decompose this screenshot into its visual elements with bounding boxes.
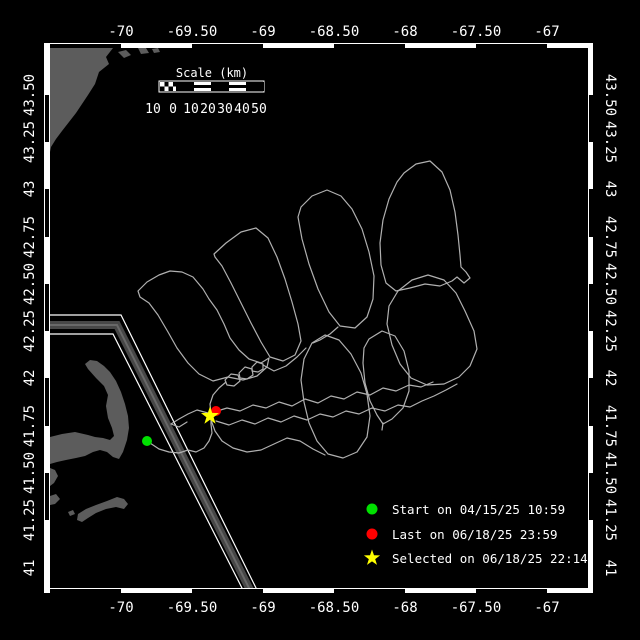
start-position-marker[interactable] [142,436,152,446]
border-dash [334,589,405,593]
scale-number: 40 [234,102,250,117]
scale-number: 10 [183,102,199,117]
axis-tick-label-right: 41.50 [602,452,618,494]
axis-tick-label-top: -69 [250,24,275,40]
scale-checker-cell [164,82,168,87]
border-dash [334,44,405,48]
scale-checker-cell [164,87,168,92]
axis-tick-label-bottom: -69 [250,600,275,616]
axis-tick-label-left: 41.25 [22,499,38,541]
axis-tick-label-right: 43.25 [602,121,618,163]
scale-checker-cell [169,87,173,92]
border-dash [192,589,263,593]
axis-tick-label-right: 41 [602,560,618,577]
axis-tick-label-left: 42.75 [22,216,38,258]
scale-number: 50 [251,102,267,117]
scale-number: 10 [145,102,161,117]
axis-tick-label-left: 41 [22,560,38,577]
border-dash [45,473,49,520]
border-dash [476,44,547,48]
axis-tick-label-right: 41.25 [602,499,618,541]
axis-tick-label-right: 42.75 [602,216,618,258]
legend-last-label: Last on 06/18/25 23:59 [392,527,558,542]
border-dash [45,189,49,237]
axis-tick-label-left: 43.50 [22,74,38,116]
axis-tick-label-right: 43 [602,181,618,198]
scale-segment-stripe [194,85,211,88]
axis-tick-label-bottom: -70 [108,600,133,616]
axis-tick-label-right: 41.75 [602,405,618,447]
axis-tick-label-left: 41.50 [22,452,38,494]
axis-tick-label-top: -67.50 [451,24,502,40]
axis-tick-label-left: 42 [22,370,38,387]
axis-tick-label-left: 43 [22,181,38,198]
border-dash [45,378,49,426]
border-dash [192,44,263,48]
axis-tick-label-bottom: -68 [392,600,417,616]
axis-tick-label-left: 41.75 [22,405,38,447]
scale-segment-stripe [229,85,246,88]
axis-tick-label-right: 42.50 [602,263,618,305]
border-dash [45,95,49,142]
scale-segment [211,82,229,91]
legend-start-marker [367,504,378,515]
legend-last-marker [367,529,378,540]
axis-tick-label-left: 43.25 [22,121,38,163]
border-dash [589,378,593,426]
border-dash [476,589,547,593]
scale-bar: Scale (km) [176,66,248,80]
border-dash [589,189,593,237]
axis-tick-label-bottom: -69.50 [167,600,218,616]
axis-tick-label-top: -68 [392,24,417,40]
axis-tick-label-top: -70 [108,24,133,40]
legend-selected-label: Selected on 06/18/25 22:14 [392,551,588,566]
map-window: -70-70-69.50-69.50-69-69-68.50-68.50-68-… [0,0,640,640]
map-canvas: -70-70-69.50-69.50-69-69-68.50-68.50-68-… [0,0,640,640]
axis-tick-label-bottom: -67.50 [451,600,502,616]
scale-checker-cell [160,87,164,92]
scale-checker-cell [169,82,173,87]
border-dash [50,589,121,593]
axis-tick-label-right: 42 [602,370,618,387]
axis-tick-label-top: -68.50 [309,24,360,40]
legend-start-label: Start on 04/15/25 10:59 [392,502,565,517]
axis-tick-label-left: 42.25 [22,310,38,352]
border-dash [50,44,121,48]
axis-tick-label-bottom: -67 [534,600,559,616]
border-dash [589,473,593,520]
scale-number: 0 [169,102,177,117]
axis-tick-label-left: 42.50 [22,263,38,305]
scale-segment [246,82,264,91]
border-dash [589,284,593,331]
axis-tick-label-right: 42.25 [602,310,618,352]
axis-tick-label-bottom: -68.50 [309,600,360,616]
scale-checker-cell [160,82,164,87]
border-dash [45,284,49,331]
axis-tick-label-right: 43.50 [602,74,618,116]
scale-number: 30 [217,102,233,117]
scale-segment [176,82,194,91]
scale-number: 20 [200,102,216,117]
axis-tick-label-top: -67 [534,24,559,40]
scale-bar-title: Scale (km) [176,66,248,80]
border-dash [589,95,593,142]
axis-tick-label-top: -69.50 [167,24,218,40]
